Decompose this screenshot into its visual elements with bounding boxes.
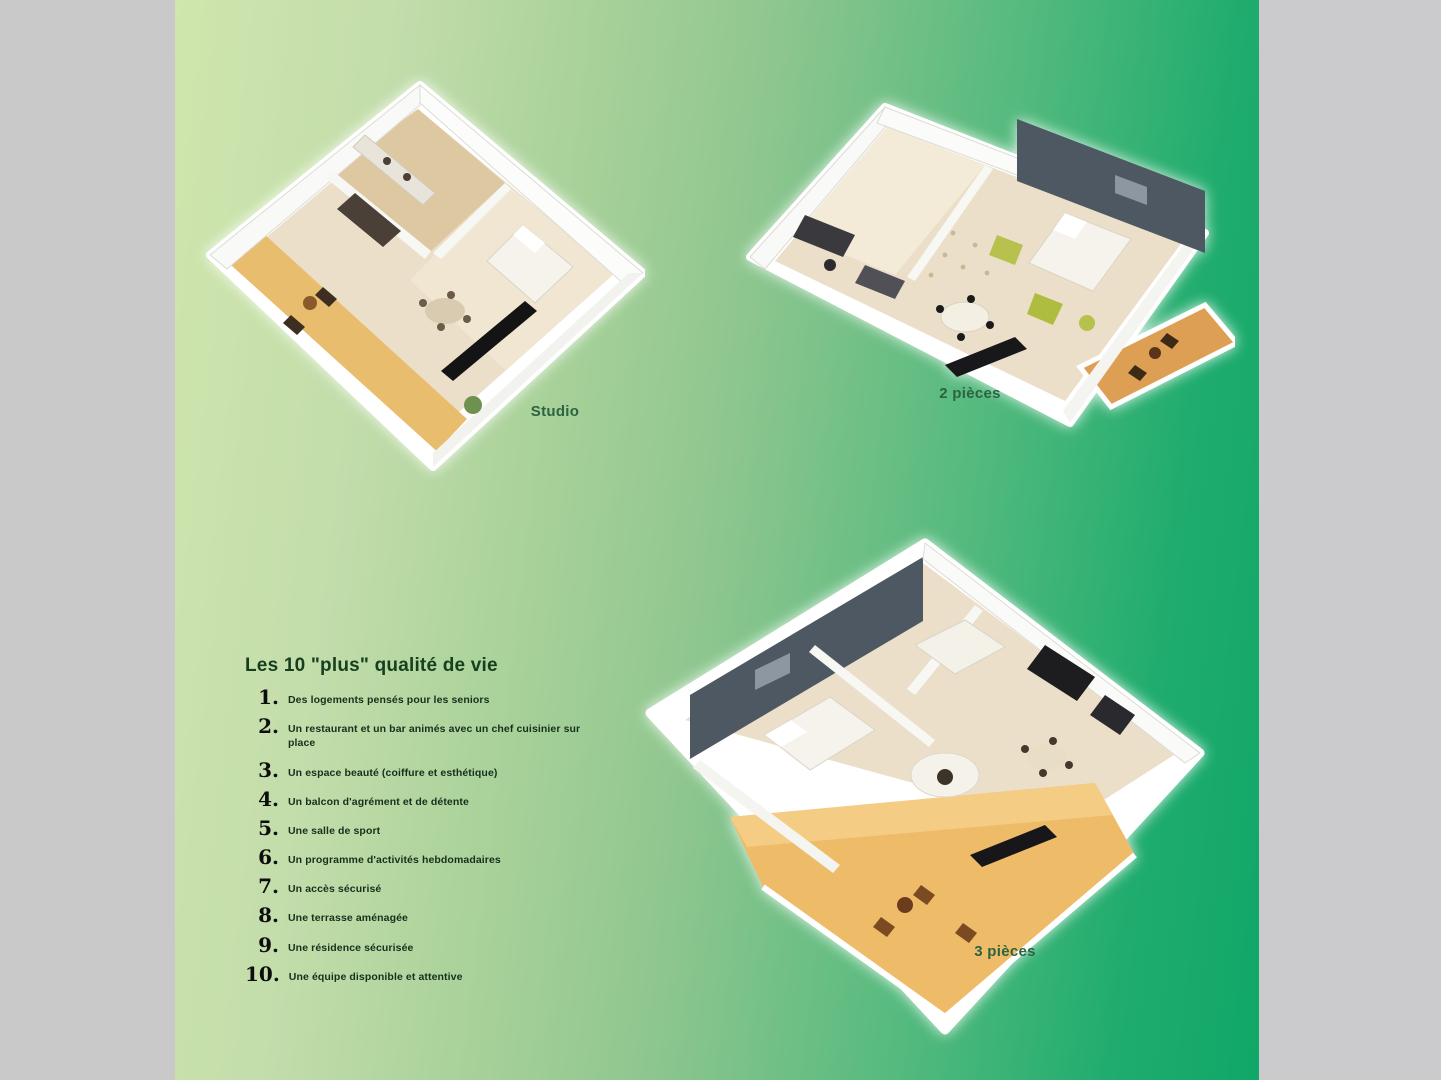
2-pieces-floorplan-illustration <box>735 85 1235 500</box>
list-item: 2. Un restaurant et un bar animés avec u… <box>245 716 585 750</box>
floorplan-studio: Studio <box>205 75 645 475</box>
item-number: 10. <box>245 964 289 984</box>
item-text: Un programme d'activités hebdomadaires <box>288 847 501 867</box>
item-text: Des logements pensés pour les seniors <box>288 687 490 707</box>
list-item: 6. Un programme d'activités hebdomadaire… <box>245 847 585 867</box>
features-block: Les 10 "plus" qualité de vie 1. Des loge… <box>245 655 585 993</box>
3-pieces-floorplan-illustration <box>615 525 1215 1045</box>
item-number: 6. <box>245 847 288 867</box>
floorplan-3-pieces: 3 pièces <box>615 525 1215 1045</box>
list-item: 8. Une terrasse aménagée <box>245 905 585 925</box>
item-number: 7. <box>245 876 288 896</box>
item-number: 5. <box>245 818 288 838</box>
brochure-panel: Studio <box>175 0 1259 1080</box>
item-number: 1. <box>245 687 288 707</box>
floorplan-label-3-pieces: 3 pièces <box>945 943 1065 960</box>
item-text: Une terrasse aménagée <box>288 905 408 925</box>
floorplan-label-2-pieces: 2 pièces <box>915 385 1025 402</box>
features-list: 1. Des logements pensés pour les seniors… <box>245 687 585 984</box>
item-number: 2. <box>245 716 288 736</box>
3p-terrace <box>730 783 1135 1017</box>
list-item: 5. Une salle de sport <box>245 818 585 838</box>
list-item: 4. Un balcon d'agrément et de détente <box>245 789 585 809</box>
floorplan-2-pieces: 2 pièces <box>735 85 1235 500</box>
list-item: 3. Un espace beauté (coiffure et esthéti… <box>245 760 585 780</box>
item-text: Une salle de sport <box>288 818 380 838</box>
item-text: Un balcon d'agrément et de détente <box>288 789 469 809</box>
item-number: 4. <box>245 789 288 809</box>
list-item: 1. Des logements pensés pour les seniors <box>245 687 585 707</box>
item-text: Une résidence sécurisée <box>288 935 413 955</box>
item-text: Un espace beauté (coiffure et esthétique… <box>288 760 497 780</box>
page: Studio <box>0 0 1441 1080</box>
item-number: 8. <box>245 905 288 925</box>
list-item: 9. Une résidence sécurisée <box>245 935 585 955</box>
floorplan-label-studio: Studio <box>505 403 605 420</box>
item-number: 3. <box>245 760 288 780</box>
list-item: 7. Un accès sécurisé <box>245 876 585 896</box>
item-text: Un accès sécurisé <box>288 876 381 896</box>
right-gray-margin <box>1259 0 1441 1080</box>
list-item: 10. Une équipe disponible et attentive <box>245 964 585 984</box>
item-text: Un restaurant et un bar animés avec un c… <box>288 716 585 750</box>
left-gray-margin <box>0 0 175 1080</box>
item-number: 9. <box>245 935 288 955</box>
item-text: Une équipe disponible et attentive <box>289 964 463 984</box>
features-title: Les 10 "plus" qualité de vie <box>245 655 585 677</box>
